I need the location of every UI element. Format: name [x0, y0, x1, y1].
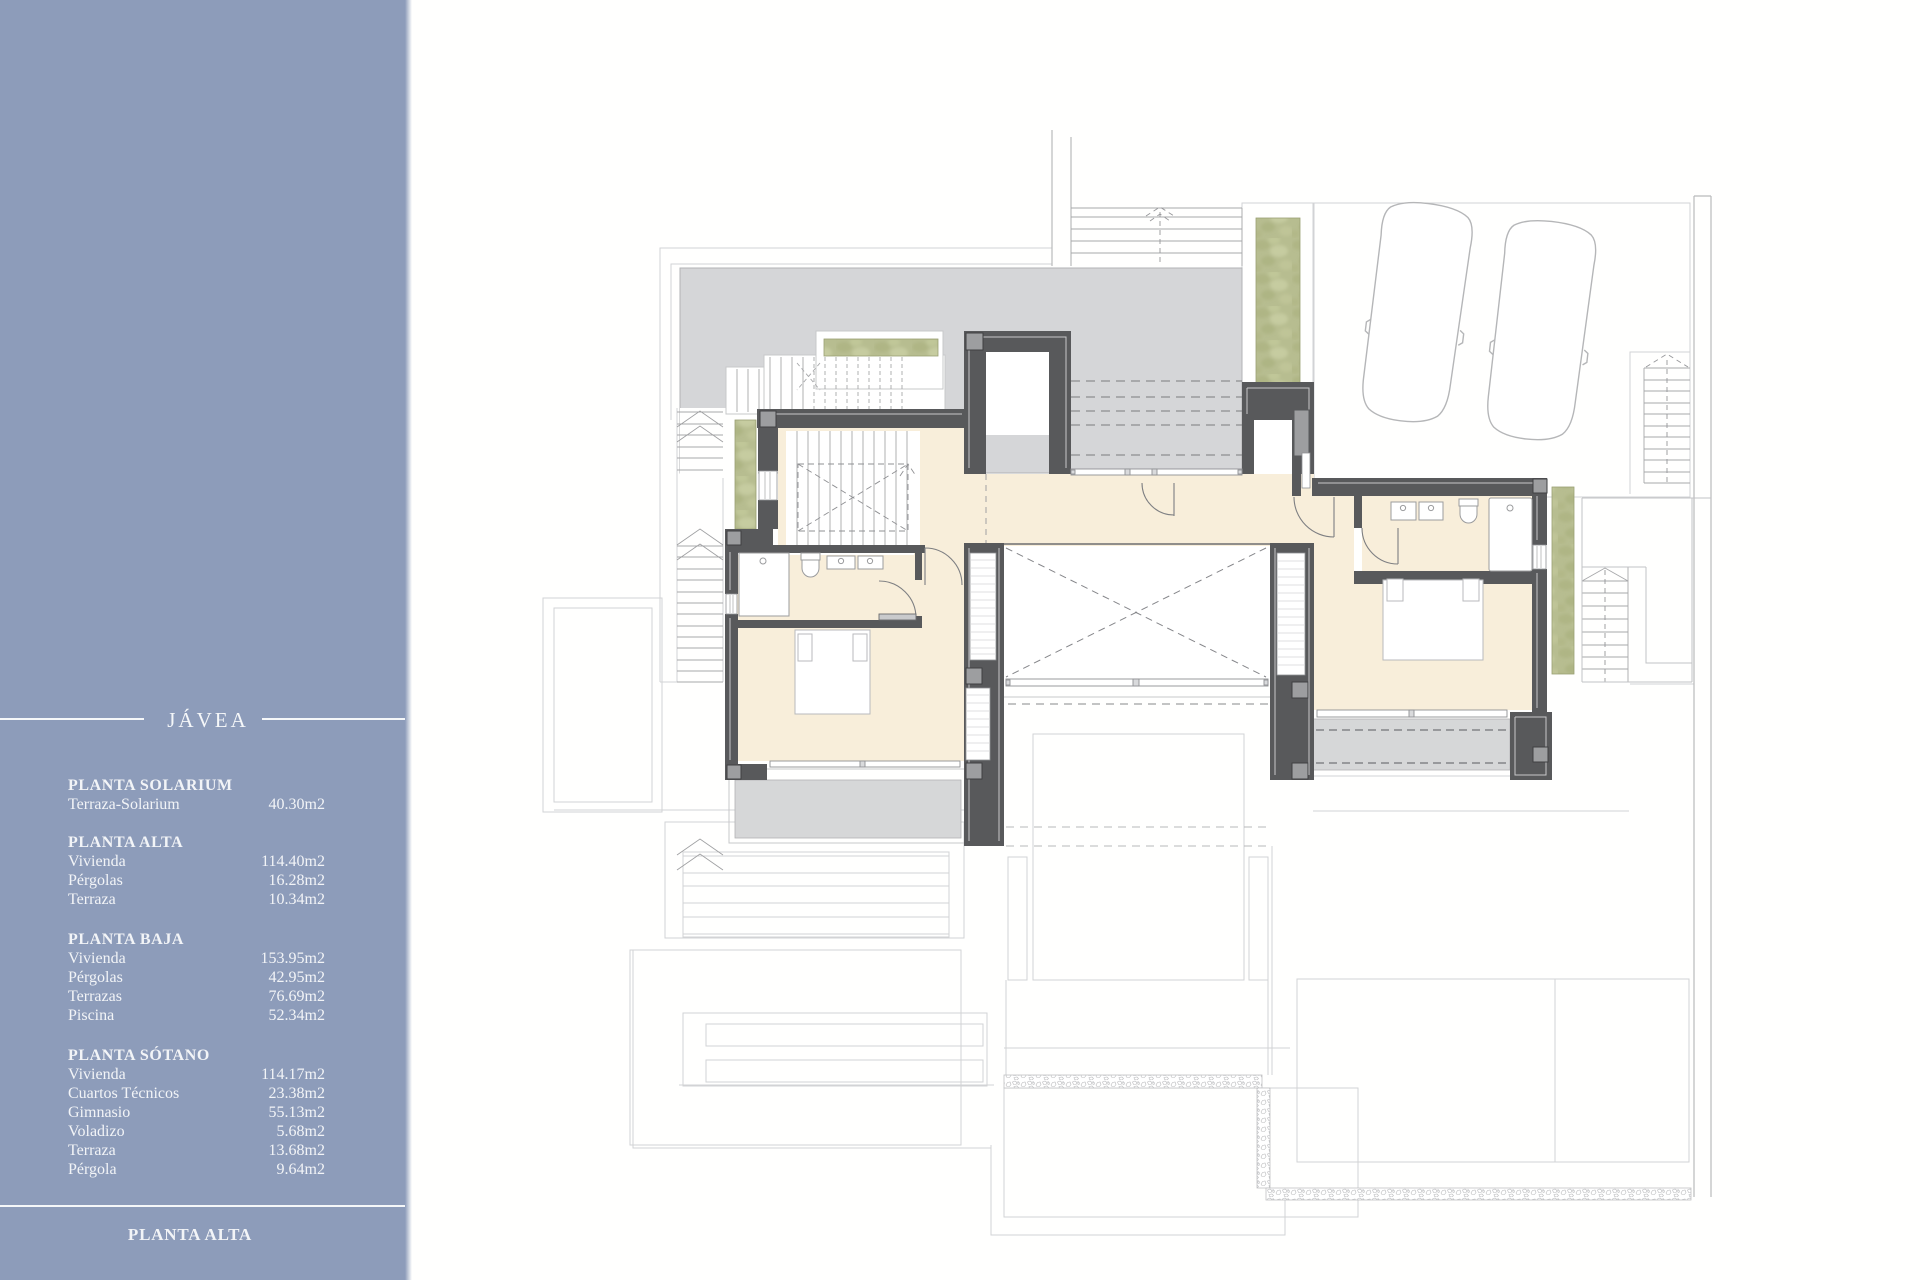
svg-text:76.69m2: 76.69m2: [269, 988, 325, 1005]
svg-text:9.64m2: 9.64m2: [277, 1161, 325, 1178]
svg-text:PLANTA SÓTANO: PLANTA SÓTANO: [68, 1045, 210, 1064]
svg-text:Vivienda: Vivienda: [68, 950, 126, 967]
svg-text:Vivienda: Vivienda: [68, 1066, 126, 1083]
svg-text:114.17m2: 114.17m2: [261, 1066, 325, 1083]
svg-text:16.28m2: 16.28m2: [269, 872, 325, 889]
svg-text:PLANTA SOLARIUM: PLANTA SOLARIUM: [68, 777, 233, 794]
svg-text:Pérgolas: Pérgolas: [68, 872, 123, 889]
svg-text:Cuartos Técnicos: Cuartos Técnicos: [68, 1085, 179, 1102]
svg-text:PLANTA ALTA: PLANTA ALTA: [128, 1225, 252, 1244]
svg-text:Terraza-Solarium: Terraza-Solarium: [68, 796, 180, 813]
svg-text:Terrazas: Terrazas: [68, 988, 122, 1005]
svg-text:Gimnasio: Gimnasio: [68, 1104, 130, 1121]
svg-text:Pérgolas: Pérgolas: [68, 969, 123, 986]
svg-text:13.68m2: 13.68m2: [269, 1142, 325, 1159]
svg-text:23.38m2: 23.38m2: [269, 1085, 325, 1102]
svg-text:Piscina: Piscina: [68, 1007, 114, 1024]
svg-text:Terraza: Terraza: [68, 891, 116, 908]
svg-text:153.95m2: 153.95m2: [261, 950, 325, 967]
svg-text:JÁVEA: JÁVEA: [167, 708, 249, 732]
svg-text:PLANTA ALTA: PLANTA ALTA: [68, 834, 183, 851]
svg-text:52.34m2: 52.34m2: [269, 1007, 325, 1024]
svg-text:55.13m2: 55.13m2: [269, 1104, 325, 1121]
svg-text:5.68m2: 5.68m2: [277, 1123, 325, 1140]
svg-text:114.40m2: 114.40m2: [261, 853, 325, 870]
svg-text:10.34m2: 10.34m2: [269, 891, 325, 908]
svg-text:Pérgola: Pérgola: [68, 1161, 117, 1178]
svg-text:Terraza: Terraza: [68, 1142, 116, 1159]
svg-text:PLANTA BAJA: PLANTA BAJA: [68, 931, 184, 948]
svg-text:Vivienda: Vivienda: [68, 853, 126, 870]
svg-text:42.95m2: 42.95m2: [269, 969, 325, 986]
svg-text:Voladizo: Voladizo: [68, 1123, 125, 1140]
svg-text:40.30m2: 40.30m2: [269, 796, 325, 813]
